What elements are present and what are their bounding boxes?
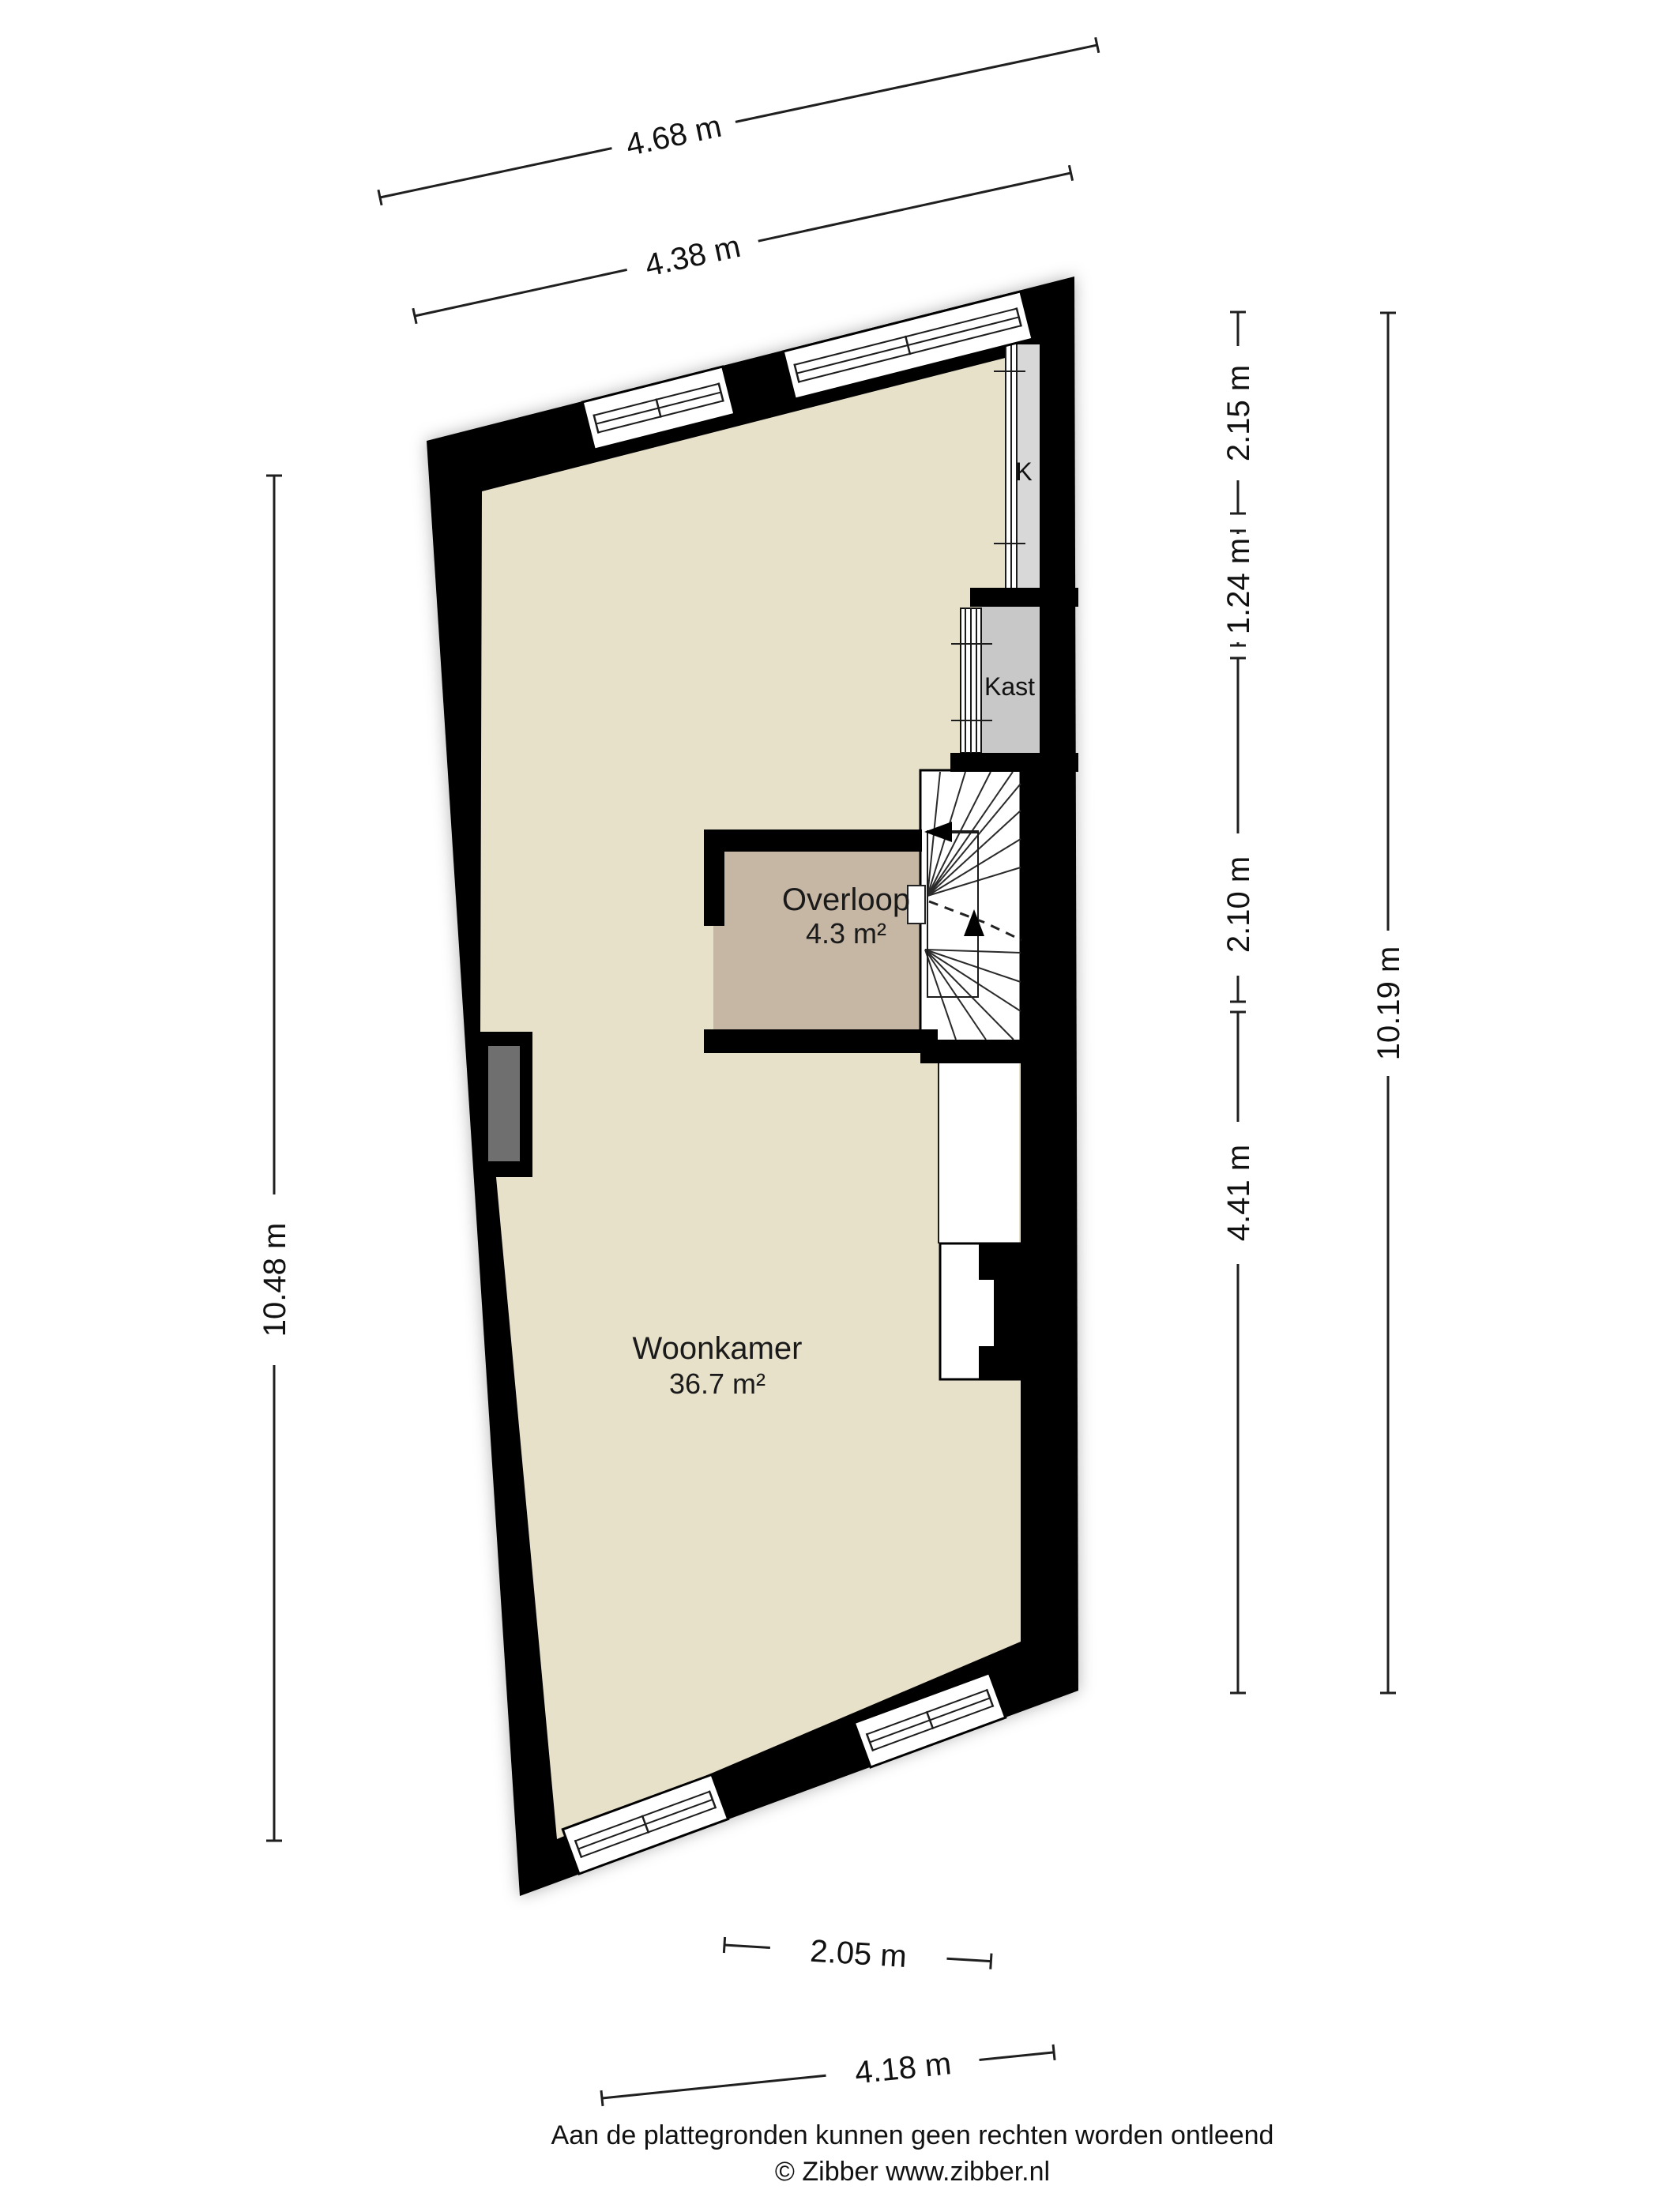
dim-top-inner-label: 4.38 m [642, 229, 744, 284]
wall-overloop-left [704, 829, 724, 926]
staircase [920, 770, 1021, 1047]
footer: Aan de plattegronden kunnen geen rechten… [551, 2120, 1274, 2187]
dim-right-total: 10.19 m [1371, 313, 1406, 1693]
floorplan-page: 4.68 m 4.38 m 10.48 m 2.15 m 1.24 m 2.10… [0, 0, 1659, 2212]
dim-right-4-label: 4.41 m [1221, 1145, 1256, 1241]
wall-under-k [970, 588, 1078, 607]
dim-bottom-outer-label: 4.18 m [853, 2046, 953, 2090]
footer-disclaimer: Aan de plattegronden kunnen geen rechten… [551, 2120, 1274, 2150]
wall-overloop-top [704, 829, 922, 852]
dim-top-outer-label: 4.68 m [623, 109, 725, 163]
dim-top-outer: 4.68 m [377, 29, 1101, 216]
void-strip [938, 1063, 1019, 1243]
woonkamer-area: 36.7 m² [669, 1367, 766, 1400]
woonkamer-name: Woonkamer [633, 1331, 803, 1366]
dim-left-label: 10.48 m [258, 1223, 292, 1337]
dim-right-total-label: 10.19 m [1371, 946, 1406, 1061]
kast-label: Kast [984, 672, 1035, 701]
dim-left: 10.48 m [258, 476, 292, 1841]
dim-right-segments [1230, 312, 1246, 1693]
wall-overloop-bottom [704, 1029, 938, 1053]
floorplan-canvas: 4.68 m 4.38 m 10.48 m 2.15 m 1.24 m 2.10… [0, 0, 1659, 2212]
wall-stair-bottom [920, 1040, 1021, 1063]
door-leaf [908, 886, 925, 924]
dim-bottom-inner-label: 2.05 m [809, 1934, 908, 1974]
dim-right-3-label: 2.10 m [1221, 856, 1256, 953]
dim-bottom-inner: 2.05 m [724, 1928, 992, 1980]
overloop-name: Overloop [782, 882, 910, 917]
overloop-area: 4.3 m² [806, 917, 886, 950]
left-niche [474, 1032, 532, 1177]
footer-copyright: © Zibber www.zibber.nl [775, 2157, 1050, 2187]
dim-right-2-label: 1.24 m [1221, 538, 1256, 634]
chimney [940, 1243, 1020, 1379]
wall-under-kast [950, 753, 1078, 772]
dim-bottom-outer: 4.18 m [600, 2036, 1056, 2116]
dim-right-1-label: 2.15 m [1221, 365, 1256, 461]
k-shaft-label: K [1015, 457, 1032, 486]
left-niche-recess [488, 1046, 520, 1161]
